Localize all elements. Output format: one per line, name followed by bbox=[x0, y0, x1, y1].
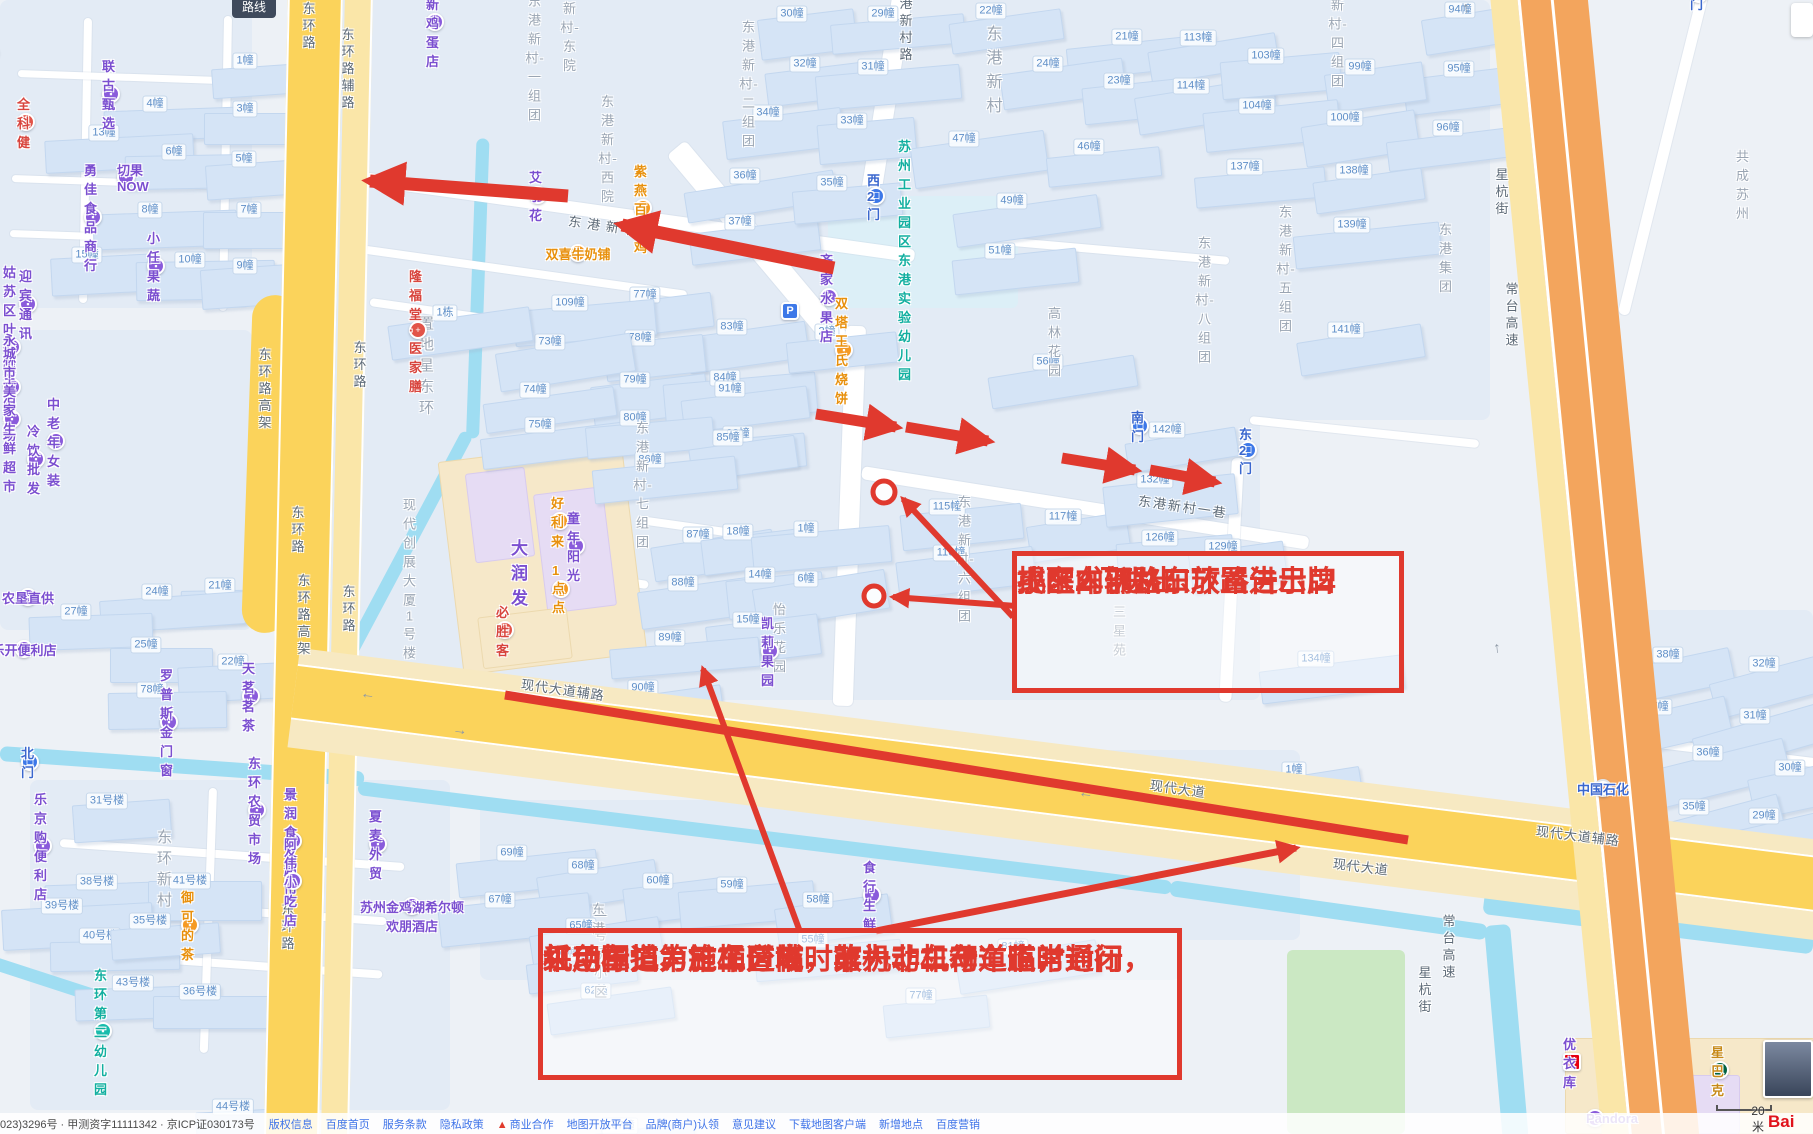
poi-label: 齐家水果店 bbox=[820, 250, 833, 345]
lane-direction-icon: → bbox=[451, 721, 468, 740]
changtai-expressway bbox=[1489, 0, 1709, 1134]
road-name-label: 星杭街 bbox=[1415, 966, 1434, 1017]
poi-label: 夏麦外贸 bbox=[369, 806, 382, 882]
road-name-label: 东环路辅路 bbox=[338, 28, 357, 113]
notice-line: 采用围挡、锥桶分离，第一、二车道正常通行 bbox=[543, 937, 1123, 983]
road-name-label: 东环路 bbox=[288, 506, 307, 557]
building-label: 100幢 bbox=[1326, 110, 1363, 127]
road-name-label: 常台高速 bbox=[1439, 914, 1458, 982]
building-label: 25幢 bbox=[130, 637, 161, 654]
building-label: 74幢 bbox=[519, 382, 550, 399]
parking-icon: P bbox=[781, 302, 799, 320]
building-label: 114幢 bbox=[1173, 78, 1210, 95]
district-label: 东港新村-四组团 bbox=[1328, 0, 1347, 90]
poi-label: 凯莉果园 bbox=[761, 613, 774, 689]
building-label: 35幢 bbox=[1678, 799, 1709, 816]
notice-box-community-signs: 小区内部路口放置告示牌 提醒车辆从东环路进出口 或东2门进出 bbox=[1012, 551, 1404, 693]
building-label: 29幢 bbox=[1748, 808, 1779, 825]
poi-label: 紫燕百味鸡 bbox=[634, 161, 647, 256]
building-label: 32幢 bbox=[789, 56, 820, 73]
notice-line: 或东2门进出 bbox=[1017, 561, 1178, 604]
building-label: 27幢 bbox=[60, 604, 91, 621]
poi-label: 乐开便利店 bbox=[0, 640, 57, 659]
building-label: 141幢 bbox=[1327, 322, 1364, 339]
building-label: 15幢 bbox=[732, 612, 763, 629]
building-label: 9幢 bbox=[232, 258, 257, 275]
poi-label: 勇佳食品商行 bbox=[84, 160, 97, 274]
poi-label: 建新鸡蛋店 bbox=[426, 0, 439, 70]
footer-bar: 023)3296号 · 甲测资字11111342 · 京ICP证030173号 … bbox=[0, 1113, 1813, 1134]
poi-label: 切果NOW bbox=[117, 160, 149, 194]
poi-label: 大润发 bbox=[511, 534, 530, 609]
poi-label: 南门 bbox=[1131, 407, 1144, 445]
poi-label: 双塔王氏烧饼 bbox=[835, 293, 848, 407]
building-label: 22幢 bbox=[975, 3, 1006, 20]
building-label: 139幢 bbox=[1333, 217, 1370, 234]
building-label: 35幢 bbox=[816, 175, 847, 192]
building-label: 36幢 bbox=[1692, 745, 1723, 762]
street-segment bbox=[1250, 416, 1480, 448]
building-label: 24幢 bbox=[1032, 56, 1063, 73]
poi-label: 必胜客 bbox=[496, 602, 509, 659]
building-label: 35号楼 bbox=[129, 913, 171, 930]
poi-label: 冷饮批发 bbox=[27, 421, 40, 497]
building-label: 1栋 bbox=[432, 305, 457, 322]
building-label: 4幢 bbox=[142, 96, 167, 113]
building-label: 5幢 bbox=[231, 151, 256, 168]
building-label: 21幢 bbox=[1111, 29, 1142, 46]
district-label: 怡乐花园 bbox=[773, 599, 787, 675]
lane-direction-icon: ← bbox=[1077, 784, 1094, 803]
building-label: 39号楼 bbox=[41, 898, 83, 915]
road-name-label: 常台高速 bbox=[1502, 282, 1521, 350]
poi-label: 双喜牛奶铺 bbox=[545, 244, 610, 263]
footer-link[interactable]: 隐私政策 bbox=[440, 1119, 484, 1131]
footer-link[interactable]: 百度首页 bbox=[326, 1119, 370, 1131]
poi-label: 优衣库 bbox=[1563, 1034, 1576, 1091]
building-label: 88幢 bbox=[667, 575, 698, 592]
building-label: 109幢 bbox=[551, 295, 588, 312]
road-name-label: 东港新村路 bbox=[896, 0, 915, 65]
building-label: 30幢 bbox=[776, 6, 807, 23]
building-label: 31幢 bbox=[1739, 708, 1770, 725]
poi-label: 小任果蔬 bbox=[147, 228, 160, 304]
poi-label: 童年阳光 bbox=[567, 508, 580, 584]
footer-link[interactable]: 服务条款 bbox=[383, 1119, 427, 1131]
road-name-label: 东环路高架 bbox=[294, 574, 313, 659]
poi-label: 天茗茗茶 bbox=[242, 658, 255, 734]
building-label: 29幢 bbox=[867, 6, 898, 23]
lane-direction-icon: ← bbox=[359, 685, 376, 704]
footer-link[interactable]: 品牌(商户)认领 bbox=[646, 1119, 719, 1131]
road-name-label: 星杭街 bbox=[1492, 168, 1511, 219]
footer-link[interactable]: 版权信息 bbox=[269, 1119, 313, 1131]
footer-link[interactable]: 商业合作 bbox=[510, 1119, 554, 1131]
building-label: 36号楼 bbox=[179, 984, 221, 1001]
footer-link[interactable]: 意见建议 bbox=[732, 1119, 776, 1131]
district-label: 东港集团 bbox=[1439, 219, 1453, 295]
building-label: 7幢 bbox=[236, 202, 261, 219]
building-label: 23幢 bbox=[1103, 73, 1134, 90]
poi-label: 东环第二幼儿园 bbox=[94, 965, 107, 1098]
poi-label: 联古甄选 bbox=[102, 56, 115, 132]
poi-label: 苏州工业园区 东港实验幼儿园 bbox=[898, 136, 911, 383]
building-label: 24幢 bbox=[141, 584, 172, 601]
building-label: 51幢 bbox=[984, 243, 1015, 260]
building-label: 89幢 bbox=[654, 630, 685, 647]
building-label: 3幢 bbox=[232, 101, 257, 118]
building-label: 117幢 bbox=[1045, 509, 1082, 526]
building-label: 60幢 bbox=[642, 873, 673, 890]
route-button[interactable]: 路线 bbox=[232, 0, 276, 18]
building-label: 33幢 bbox=[836, 113, 867, 130]
building-label: 79幢 bbox=[619, 372, 650, 389]
building-label: 138幢 bbox=[1335, 163, 1372, 180]
building-label: 83幢 bbox=[716, 319, 747, 336]
building-label: 85幢 bbox=[712, 430, 743, 447]
district-label: 东港新村-五组团 bbox=[1276, 202, 1295, 335]
building-label: 103幢 bbox=[1247, 48, 1284, 65]
district-label: 东港新村-七组团 bbox=[633, 418, 652, 551]
poi-label: 北门 bbox=[1690, 0, 1703, 13]
building-label: 36幢 bbox=[729, 168, 760, 185]
poi-label: 全科健 bbox=[17, 94, 30, 151]
building-label: 137幢 bbox=[1226, 159, 1263, 176]
building-label: 96幢 bbox=[1432, 120, 1463, 137]
district-label: 高林花园 bbox=[1048, 303, 1062, 379]
poi-label: 御可的茶 bbox=[181, 887, 194, 963]
building-label: 6幢 bbox=[793, 571, 818, 588]
poi-label: 西2门 bbox=[867, 170, 880, 223]
district-label: 东港新村 bbox=[986, 20, 1003, 116]
road-name-label: 东环路 bbox=[299, 2, 318, 53]
building-label: 67幢 bbox=[484, 892, 515, 909]
building-label: 94幢 bbox=[1444, 2, 1475, 19]
road-name-label: 东环路 bbox=[350, 341, 369, 392]
footer-link[interactable]: 地图开放平台 bbox=[567, 1119, 633, 1131]
poi-label: 乐京购便利店 bbox=[34, 789, 47, 903]
building-label: 1幢 bbox=[232, 53, 257, 70]
mall-block bbox=[477, 607, 573, 670]
poi-label: 中老年女装 bbox=[47, 394, 60, 489]
district-label: 现代创展 大厦1号楼 bbox=[403, 495, 417, 662]
road-name-label: 东环路 bbox=[339, 585, 358, 636]
footer-link[interactable]: 新增地点 bbox=[879, 1119, 923, 1131]
building-label: 104幢 bbox=[1238, 98, 1275, 115]
building-label: 6幢 bbox=[161, 144, 186, 161]
building-label: 38幢 bbox=[1652, 647, 1683, 664]
poi-label: 城市美家生 鲜超市 bbox=[3, 343, 16, 495]
building-label: 113幢 bbox=[1180, 30, 1217, 47]
poi-label: 苏州金鸡湖希尔顿 欢朋酒店 bbox=[360, 897, 464, 935]
road-name-label: 东环路高架 bbox=[255, 348, 274, 433]
building-label: 99幢 bbox=[1344, 59, 1375, 76]
canal-segment bbox=[1484, 924, 1529, 1134]
map-canvas[interactable]: 1幢4幢3幢13幢6幢5幢8幢7幢15幢10幢9幢30幢29幢22幢21幢113… bbox=[0, 0, 1813, 1134]
poi-label: 东2门 bbox=[1239, 424, 1252, 477]
license-text: 023)3296号 · 甲测资字11111342 · 京ICP证030173号 bbox=[0, 1116, 255, 1132]
district-label: 东港新村-东院 bbox=[560, 0, 579, 74]
warn-triangle-icon: ▲ bbox=[497, 1119, 508, 1131]
footer-link[interactable]: 百度营销 bbox=[936, 1119, 980, 1131]
building-label: 69幢 bbox=[496, 845, 527, 862]
building-label: 91幢 bbox=[714, 381, 745, 398]
building-label: 31号楼 bbox=[86, 793, 128, 810]
building-label: 1幢 bbox=[793, 521, 818, 538]
building-label: 43号楼 bbox=[112, 975, 154, 992]
building-label: 38号楼 bbox=[76, 874, 118, 891]
poi-label: 东环农贸市场 bbox=[248, 753, 261, 867]
road-surface bbox=[1516, 0, 1710, 1134]
district-label: 东港新村-西院 bbox=[598, 91, 617, 205]
building-label: 126幢 bbox=[1141, 530, 1178, 547]
notice-box-construction: 红色标记为施工区域，非机动车行道临时封闭， 机动车道第三车道临时改为非机动车道，… bbox=[538, 928, 1182, 1080]
district-label: 东港新村-八组团 bbox=[1195, 233, 1214, 366]
building-label: 31幢 bbox=[857, 59, 888, 76]
district-label: 东港新村-二组团 bbox=[739, 17, 758, 150]
building-label: 59幢 bbox=[716, 877, 747, 894]
streetview-thumbnail[interactable] bbox=[1763, 1040, 1813, 1098]
lane-direction-icon: → bbox=[1336, 855, 1353, 874]
building-label: 73幢 bbox=[534, 334, 565, 351]
district-label: 共成苏州 bbox=[1736, 146, 1750, 222]
lane-direction-icon: ↑ bbox=[1461, 0, 1470, 17]
poi-label: 艾小花 bbox=[529, 167, 542, 224]
poi-label: 1点点 bbox=[552, 563, 565, 616]
building-label: 30幢 bbox=[1774, 760, 1805, 777]
poi-label: 阿伟小吃店 bbox=[284, 834, 297, 929]
building-label: 132幢 bbox=[1136, 472, 1173, 489]
building-label: 75幢 bbox=[524, 417, 555, 434]
building-label: 142幢 bbox=[1148, 422, 1185, 439]
poi-label: 食行生鲜 bbox=[863, 857, 876, 933]
district-label: 东港新村-六组团 bbox=[955, 492, 974, 625]
building-label: 49幢 bbox=[996, 193, 1027, 210]
district-label: 东环新村 bbox=[157, 826, 173, 910]
poi-label: 隆福堂·医家膳 bbox=[409, 266, 422, 395]
baidu-logo[interactable]: Bai bbox=[1768, 1112, 1794, 1132]
building-label: 14幢 bbox=[744, 567, 775, 584]
district-label: 东港新村-一组团 bbox=[525, 0, 544, 124]
lane-direction-icon: ↑ bbox=[1492, 639, 1501, 657]
building-label: 47幢 bbox=[948, 131, 979, 148]
building-label: 10幢 bbox=[174, 252, 205, 269]
poi-label: 好利来 bbox=[551, 493, 564, 550]
building-label: 18幢 bbox=[722, 524, 753, 541]
building-label: 68幢 bbox=[567, 858, 598, 875]
map-scale: 20 米 bbox=[1716, 1104, 1772, 1111]
poi-label: 罗普斯金门窗 bbox=[160, 665, 173, 779]
poi-label: 中国石化 bbox=[1577, 779, 1629, 798]
park-green bbox=[1287, 950, 1405, 1134]
building-label: 37幢 bbox=[724, 214, 755, 231]
poi-label: 迎宾通讯 bbox=[19, 266, 32, 342]
building-label: 95幢 bbox=[1443, 61, 1474, 78]
building-label: 8幢 bbox=[137, 202, 162, 219]
poi-label: 星巴克 bbox=[1711, 1042, 1724, 1099]
building-label: 58幢 bbox=[802, 892, 833, 909]
footer-link[interactable]: 下载地图客户端 bbox=[789, 1119, 866, 1131]
map-control-button[interactable] bbox=[1791, 3, 1813, 37]
building-label: 46幢 bbox=[1073, 139, 1104, 156]
building-label: 32幢 bbox=[1748, 656, 1779, 673]
poi-label: 北门 bbox=[21, 743, 34, 781]
street-segment bbox=[1618, 0, 1709, 316]
poi-label: 农垦直供 bbox=[2, 588, 54, 607]
